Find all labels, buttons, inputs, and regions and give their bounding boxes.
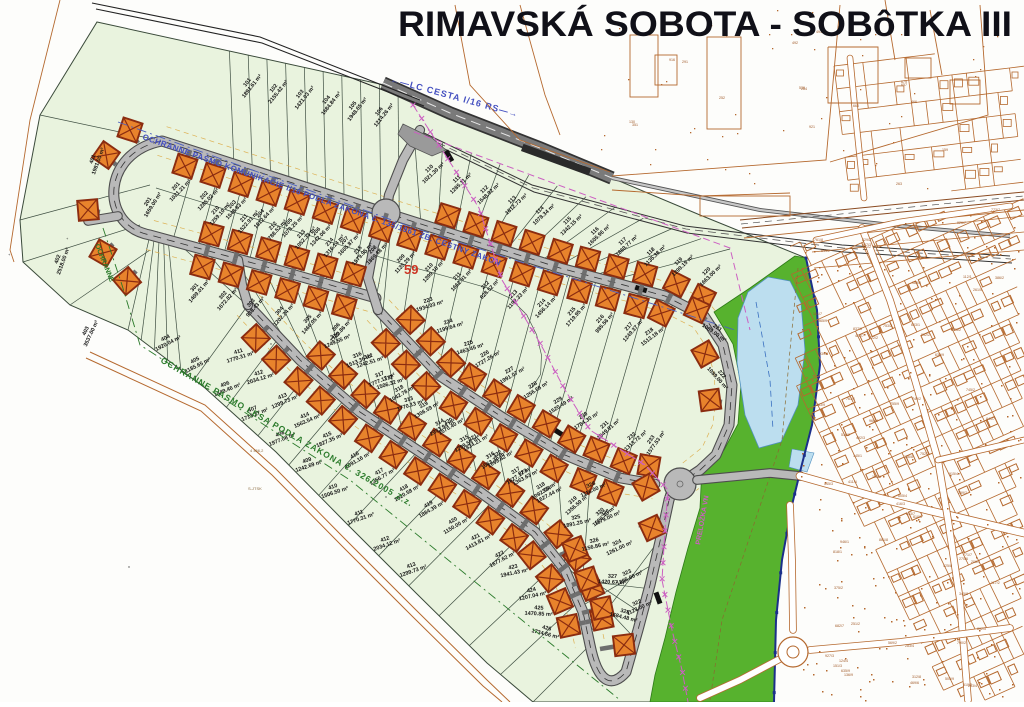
svg-text:469/6: 469/6 xyxy=(910,681,919,685)
svg-text:291: 291 xyxy=(682,60,688,64)
svg-text:663: 663 xyxy=(853,104,859,108)
svg-text:156/8: 156/8 xyxy=(904,455,913,459)
svg-text:573/2: 573/2 xyxy=(952,328,961,332)
svg-text:x: x xyxy=(128,564,130,569)
svg-text:771/7: 771/7 xyxy=(963,553,972,557)
svg-text:966/4: 966/4 xyxy=(869,419,878,423)
svg-text:921: 921 xyxy=(809,125,815,129)
svg-text:752/7: 752/7 xyxy=(920,452,929,456)
svg-text:881/8: 881/8 xyxy=(879,538,888,542)
svg-text:112/1: 112/1 xyxy=(963,275,972,279)
svg-text:124/4: 124/4 xyxy=(839,659,848,663)
svg-text:753/2: 753/2 xyxy=(883,324,892,328)
svg-text:59: 59 xyxy=(404,262,418,277)
svg-text:345/8: 345/8 xyxy=(959,592,968,596)
svg-text:145/1: 145/1 xyxy=(853,454,862,458)
svg-text:108/6: 108/6 xyxy=(872,475,881,479)
svg-text:605/4: 605/4 xyxy=(898,494,907,498)
svg-text:810/1: 810/1 xyxy=(913,515,922,519)
svg-text:818/1: 818/1 xyxy=(833,550,842,554)
svg-text:251/2: 251/2 xyxy=(851,622,860,626)
svg-text:790/2: 790/2 xyxy=(957,641,966,645)
svg-text:263: 263 xyxy=(896,182,902,186)
svg-text:516/2: 516/2 xyxy=(841,433,850,437)
svg-text:284: 284 xyxy=(801,87,807,91)
svg-text:544/2: 544/2 xyxy=(821,249,830,253)
svg-text:136/9: 136/9 xyxy=(844,673,853,677)
svg-text:161/7: 161/7 xyxy=(813,312,822,316)
svg-text:x: x xyxy=(385,494,387,499)
svg-text:259/2: 259/2 xyxy=(958,491,967,495)
svg-text:841/7: 841/7 xyxy=(986,417,995,421)
svg-text:892/5: 892/5 xyxy=(977,627,986,631)
svg-text:939/3: 939/3 xyxy=(819,352,828,356)
svg-text:283/4: 283/4 xyxy=(905,644,914,648)
svg-text:422/7: 422/7 xyxy=(855,334,864,338)
svg-text:x: x xyxy=(270,341,272,346)
svg-text:1470.85 m²: 1470.85 m² xyxy=(524,610,553,618)
svg-text:411/4: 411/4 xyxy=(848,480,857,484)
svg-text:S-JTSK: S-JTSK xyxy=(248,486,262,491)
svg-text:569/2: 569/2 xyxy=(888,641,897,645)
svg-text:307/3: 307/3 xyxy=(862,243,871,247)
svg-text:312/8: 312/8 xyxy=(912,675,921,679)
svg-text:926/7: 926/7 xyxy=(957,221,966,225)
svg-text:159: 159 xyxy=(942,148,948,152)
svg-text:761/1: 761/1 xyxy=(846,397,855,401)
svg-text:252: 252 xyxy=(719,96,725,100)
svg-text:416/3: 416/3 xyxy=(896,502,905,506)
svg-text:829/2: 829/2 xyxy=(862,238,871,242)
svg-text:927/3: 927/3 xyxy=(825,654,834,658)
svg-text:386/2: 386/2 xyxy=(995,276,1004,280)
svg-text:915/4: 915/4 xyxy=(949,472,958,476)
svg-text:206/4: 206/4 xyxy=(971,560,980,564)
svg-text:185/5: 185/5 xyxy=(912,281,921,285)
svg-text:837/6: 837/6 xyxy=(853,327,862,331)
svg-text:222/2: 222/2 xyxy=(869,336,878,340)
svg-text:967/6: 967/6 xyxy=(964,252,973,256)
svg-text:270/6: 270/6 xyxy=(959,557,968,561)
svg-text:545/3: 545/3 xyxy=(824,482,833,486)
svg-text:761/8: 761/8 xyxy=(814,238,823,242)
svg-text:755/9: 755/9 xyxy=(890,402,899,406)
svg-text:745/2: 745/2 xyxy=(966,388,975,392)
svg-text:603/1: 603/1 xyxy=(911,323,920,327)
svg-text:117/2: 117/2 xyxy=(991,581,1000,585)
svg-text:946/1: 946/1 xyxy=(840,540,849,544)
svg-text:233/4: 233/4 xyxy=(968,684,977,688)
svg-text:932/2: 932/2 xyxy=(921,333,930,337)
svg-text:630/9: 630/9 xyxy=(935,353,944,357)
svg-text:151/3: 151/3 xyxy=(833,664,842,668)
svg-text:682/7: 682/7 xyxy=(835,624,844,628)
svg-text:563/9: 563/9 xyxy=(816,403,825,407)
svg-text:466: 466 xyxy=(911,100,917,104)
svg-text:679: 679 xyxy=(901,80,907,84)
svg-text:261/5: 261/5 xyxy=(973,288,982,292)
svg-text:773/7: 773/7 xyxy=(991,208,1000,212)
svg-text:505/9: 505/9 xyxy=(945,677,954,681)
svg-text:492/3: 492/3 xyxy=(856,436,865,440)
svg-text:4 456,2: 4 456,2 xyxy=(250,448,264,453)
svg-text:375/2: 375/2 xyxy=(834,586,843,590)
svg-text:749/2: 749/2 xyxy=(912,397,921,401)
svg-text:425/8: 425/8 xyxy=(943,564,952,568)
svg-text:130: 130 xyxy=(629,120,635,124)
svg-text:916: 916 xyxy=(669,58,675,62)
svg-text:965/9: 965/9 xyxy=(818,319,827,323)
svg-text:RIMAVSKÁ SOBOTA - SOBôTKA III: RIMAVSKÁ SOBOTA - SOBôTKA III xyxy=(398,4,1012,44)
